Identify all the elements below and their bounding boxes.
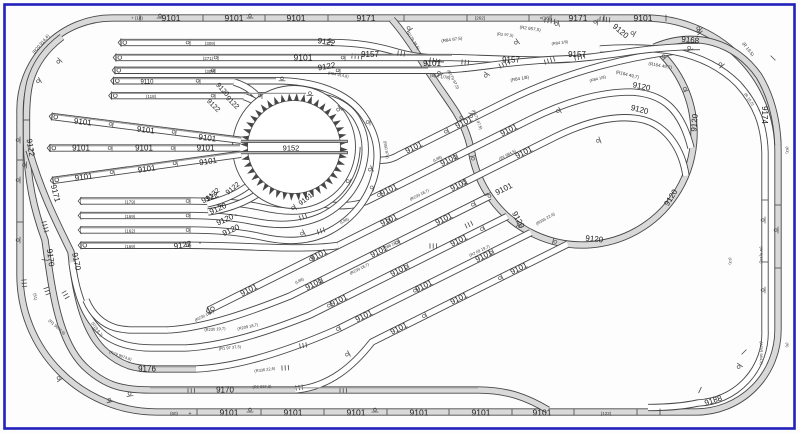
svg-text:+ (18): + (18) <box>131 16 143 21</box>
svg-text:9101: 9101 <box>72 144 90 153</box>
svg-text:(309): (309) <box>205 69 216 74</box>
svg-text:9174: 9174 <box>760 106 769 124</box>
svg-text:9101: 9101 <box>472 408 491 418</box>
svg-text:9171: 9171 <box>569 13 588 23</box>
svg-text:9101: 9101 <box>225 13 244 23</box>
svg-text:(262): (262) <box>475 16 486 21</box>
svg-text:(122): (122) <box>601 411 612 416</box>
svg-text:9152: 9152 <box>283 143 300 152</box>
svg-text:9171: 9171 <box>357 13 376 23</box>
svg-text:(162): (162) <box>125 229 136 234</box>
svg-text:9120: 9120 <box>585 234 604 245</box>
svg-text:9170: 9170 <box>216 386 234 395</box>
svg-text:9101: 9101 <box>410 408 429 418</box>
svg-text:9101: 9101 <box>347 408 366 418</box>
svg-text:9101: 9101 <box>533 408 552 418</box>
svg-text:(63): (63) <box>785 146 790 154</box>
svg-text:9101: 9101 <box>220 408 239 418</box>
svg-text:(60): (60) <box>170 411 179 416</box>
svg-text:(309): (309) <box>205 41 216 46</box>
svg-text:9157: 9157 <box>502 56 520 65</box>
svg-text:×(18): ×(18) <box>540 16 551 21</box>
svg-text:(118): (118) <box>146 94 157 99</box>
svg-text:(9): (9) <box>785 343 790 349</box>
svg-text:(R2 637,3): (R2 637,3) <box>252 383 272 389</box>
svg-text:9101: 9101 <box>294 52 313 62</box>
svg-text:*: * <box>235 214 237 220</box>
svg-text:9168: 9168 <box>681 35 700 46</box>
svg-text:(271): (271) <box>203 56 214 61</box>
svg-text:*: * <box>199 242 201 248</box>
svg-text:9101: 9101 <box>162 13 181 23</box>
svg-text:(13): (13) <box>728 257 733 265</box>
svg-text:9157: 9157 <box>568 50 586 59</box>
svg-text:9101: 9101 <box>287 13 306 23</box>
svg-text:9101: 9101 <box>197 144 215 153</box>
svg-text:9101: 9101 <box>423 59 441 68</box>
svg-text:9101: 9101 <box>284 408 303 418</box>
svg-text:(169): (169) <box>125 214 136 219</box>
svg-text:(179): (179) <box>125 200 136 205</box>
svg-text:+: + <box>189 411 192 417</box>
svg-text:(169): (169) <box>125 244 136 249</box>
svg-text:9101: 9101 <box>135 144 153 153</box>
svg-text:9176: 9176 <box>138 365 156 374</box>
svg-text:9120: 9120 <box>689 113 700 132</box>
svg-text:9157: 9157 <box>361 50 379 59</box>
svg-text:(WDR 984,5): (WDR 984,5) <box>759 341 764 365</box>
svg-text:9110: 9110 <box>141 79 155 85</box>
svg-text:9101: 9101 <box>634 13 653 23</box>
svg-text:(W 9(16)): (W 9(16)) <box>759 247 764 265</box>
